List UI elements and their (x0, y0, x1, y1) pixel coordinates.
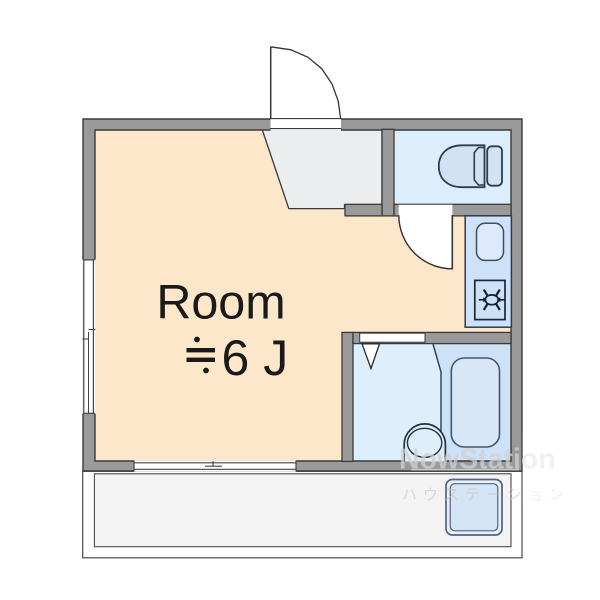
svg-text:6 J: 6 J (222, 330, 289, 386)
svg-text:Room: Room (156, 276, 285, 330)
